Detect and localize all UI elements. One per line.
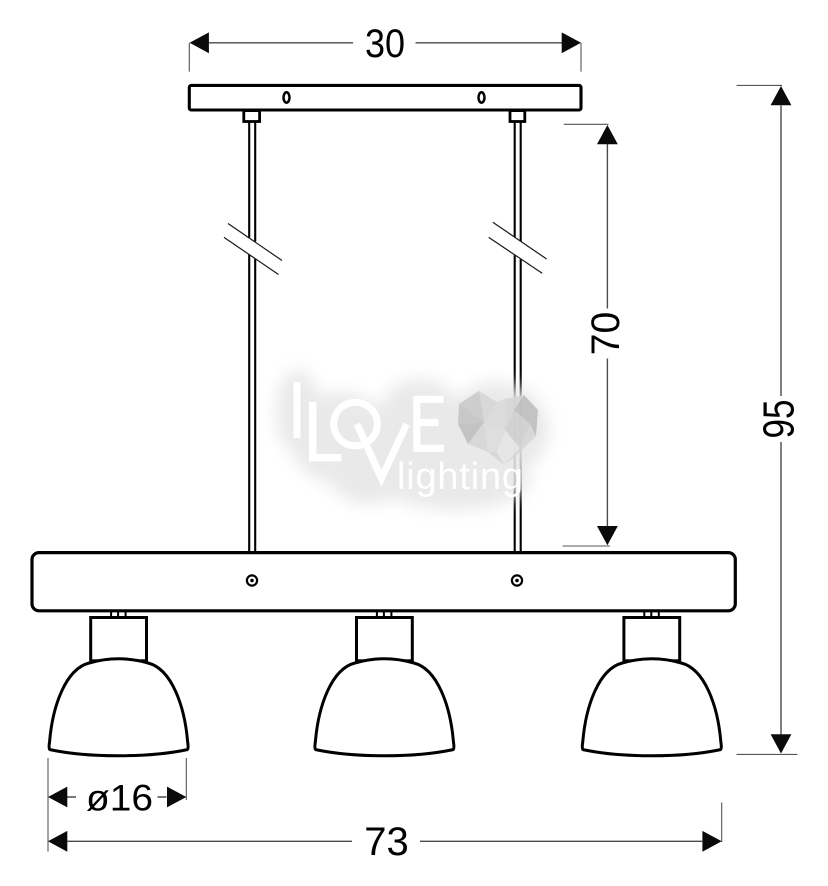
- svg-text:lighting: lighting: [397, 456, 524, 498]
- svg-text:30: 30: [365, 22, 405, 66]
- svg-text:95: 95: [755, 400, 804, 439]
- svg-text:70: 70: [584, 312, 628, 356]
- svg-text:73: 73: [364, 820, 409, 864]
- svg-text:ø16: ø16: [86, 778, 153, 819]
